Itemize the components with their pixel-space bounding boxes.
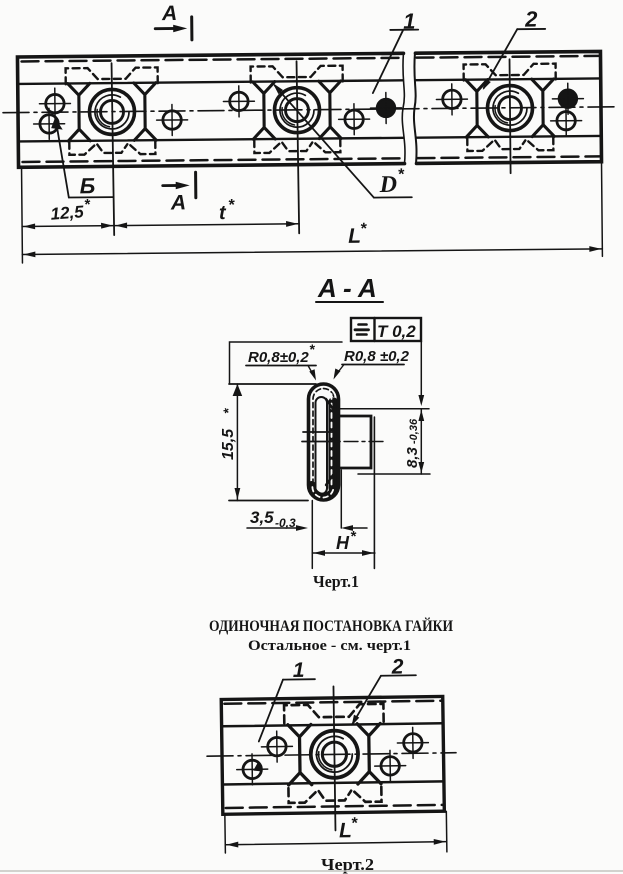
svg-text:A: A xyxy=(161,2,177,25)
svg-text:A - A: A - A xyxy=(317,273,377,303)
svg-text:D: D xyxy=(379,172,398,198)
svg-text:H: H xyxy=(336,533,350,553)
svg-text:*: * xyxy=(228,197,235,214)
svg-text:*: * xyxy=(351,815,358,832)
svg-text:R0,8±0,2: R0,8±0,2 xyxy=(248,349,309,366)
svg-text:15,5: 15,5 xyxy=(220,428,237,460)
svg-text:*: * xyxy=(220,408,236,414)
svg-text:3,5: 3,5 xyxy=(250,508,274,527)
svg-text:R0,8 ±0,2: R0,8 ±0,2 xyxy=(344,348,410,365)
svg-text:8,3: 8,3 xyxy=(404,446,421,468)
svg-text:Б: Б xyxy=(80,173,96,198)
svg-text:*: * xyxy=(398,166,405,183)
svg-text:2: 2 xyxy=(524,7,538,32)
svg-text:-0,36: -0,36 xyxy=(408,418,420,444)
svg-text:T 0,2: T 0,2 xyxy=(377,322,416,341)
svg-text:Остальное - см. черт.1: Остальное - см. черт.1 xyxy=(248,638,411,654)
svg-text:*: * xyxy=(309,341,315,357)
svg-text:*: * xyxy=(360,221,367,238)
svg-text:Черт.1: Черт.1 xyxy=(313,572,359,591)
svg-text:A: A xyxy=(170,191,186,214)
svg-text:12,5: 12,5 xyxy=(50,202,85,224)
svg-text:ОДИНОЧНАЯ ПОСТАНОВКА ГАЙКИ: ОДИНОЧНАЯ ПОСТАНОВКА ГАЙКИ xyxy=(209,616,453,635)
